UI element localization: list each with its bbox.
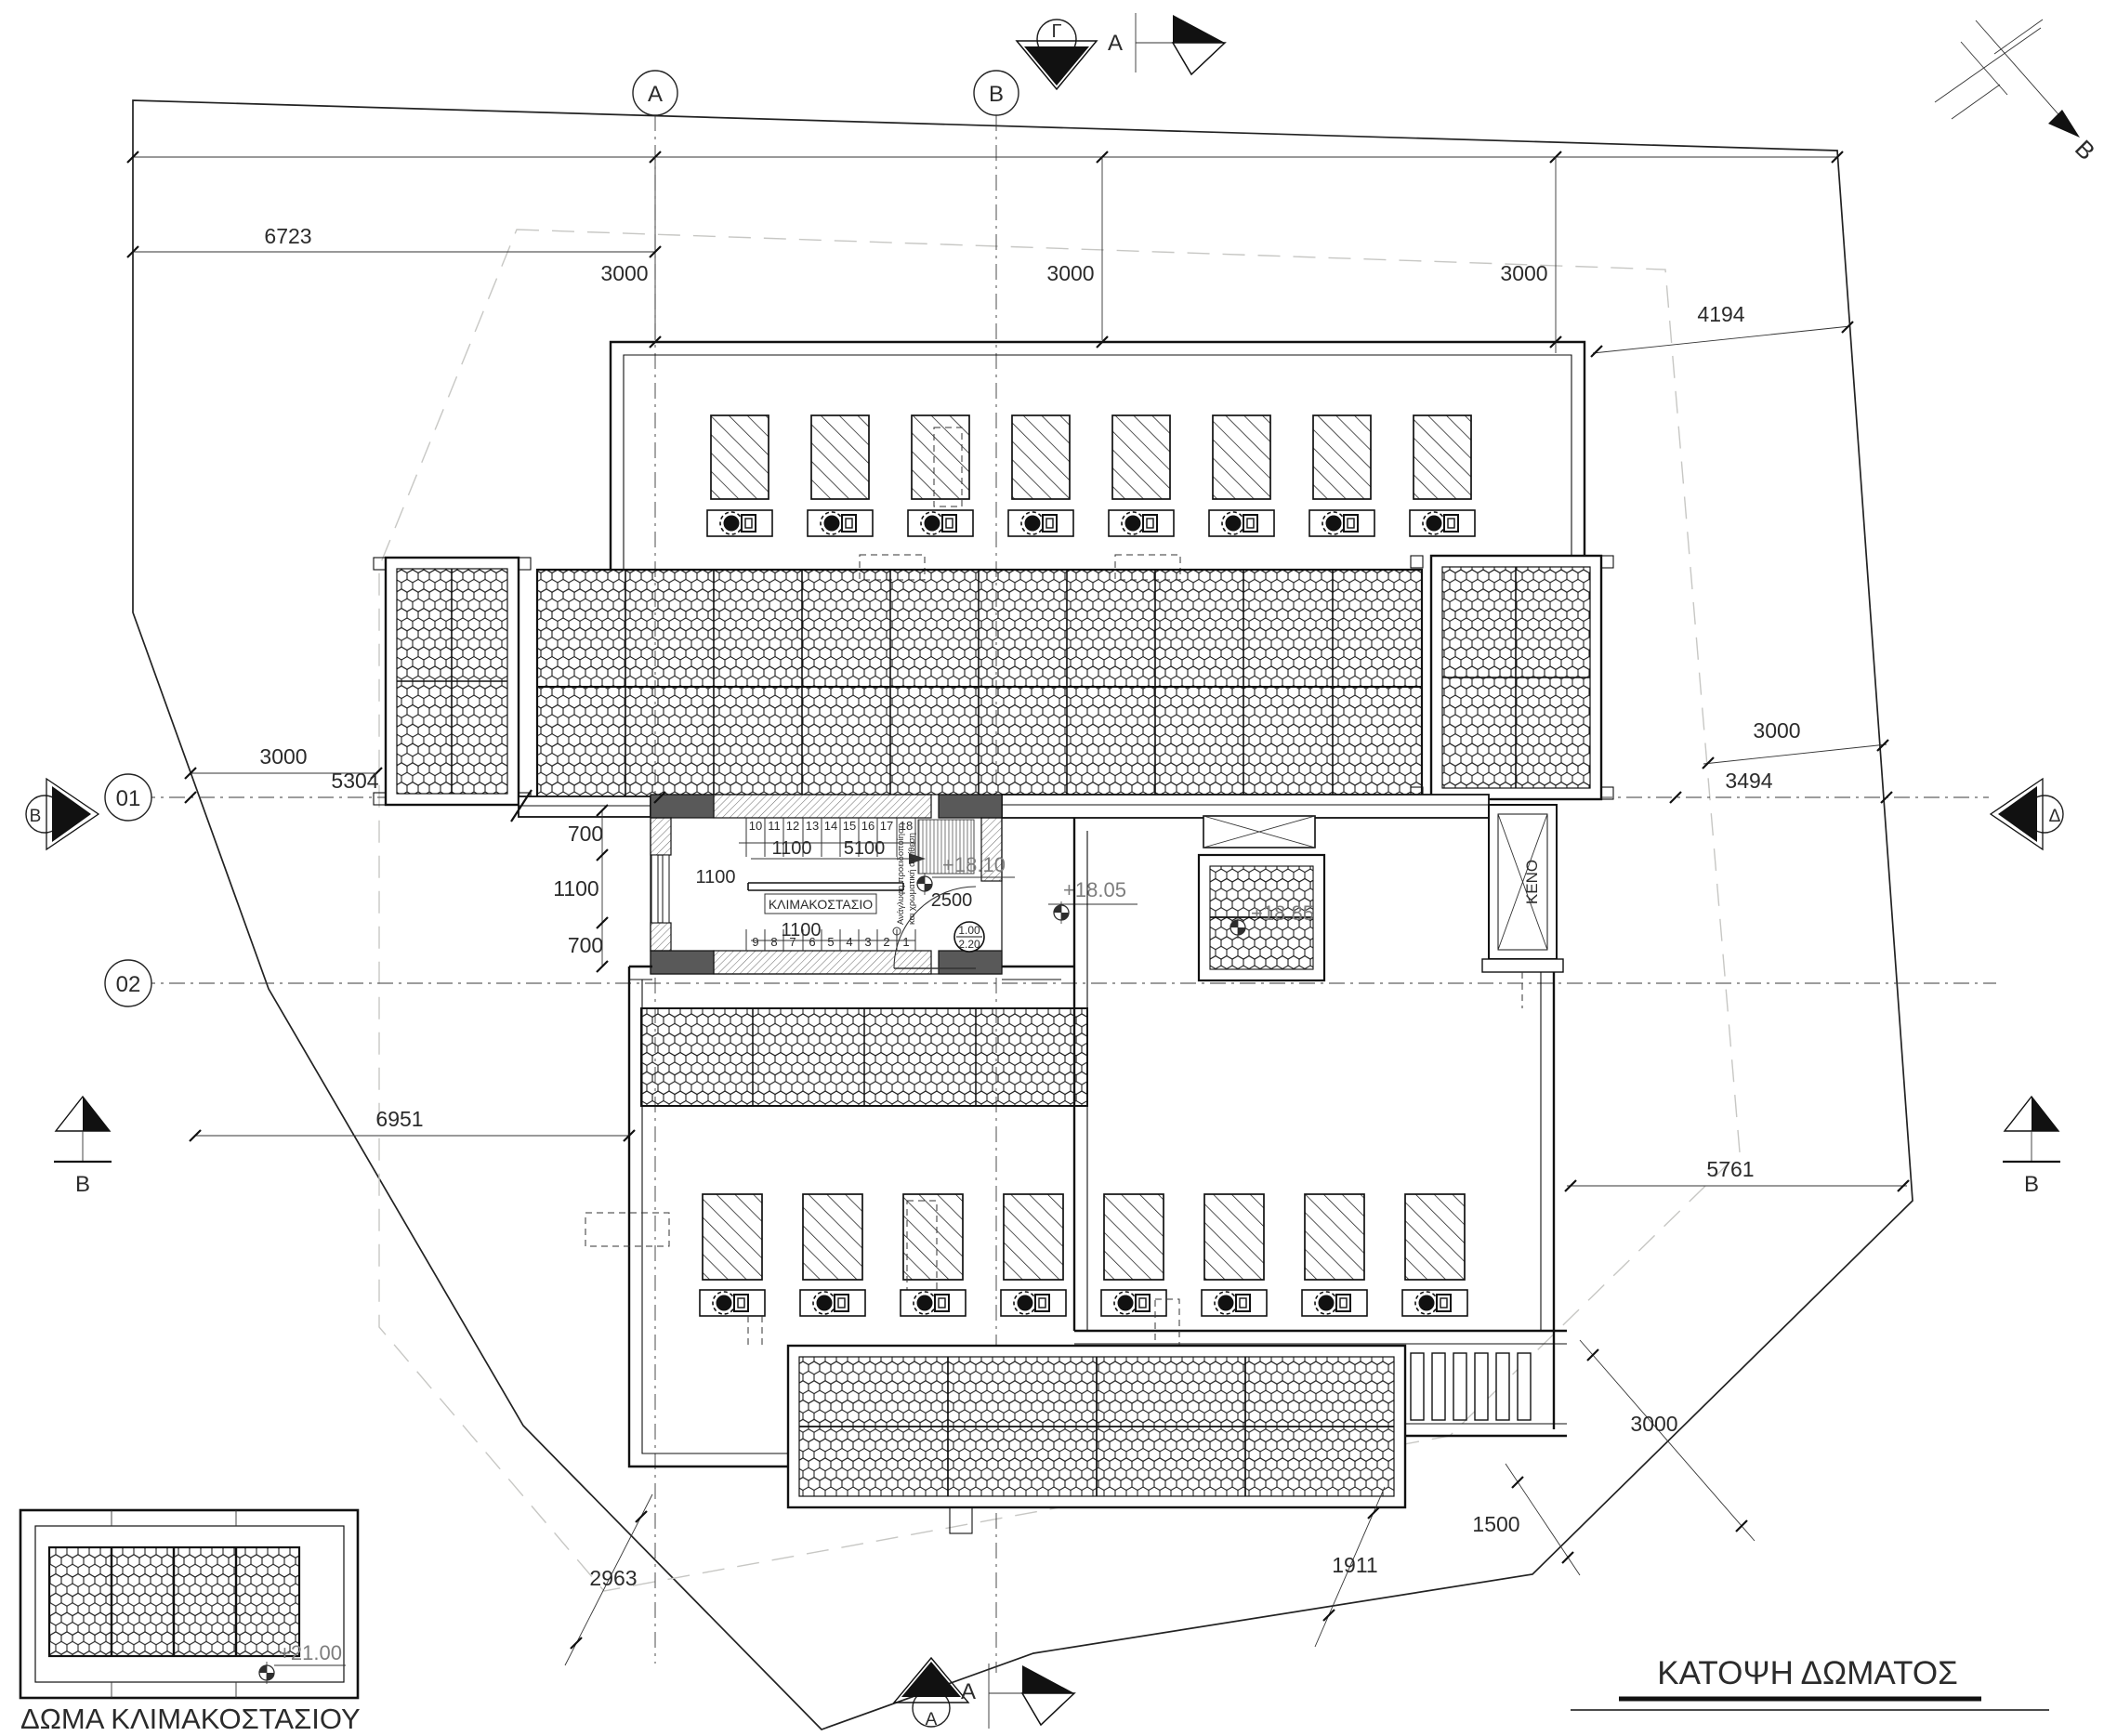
- tread-numbers-lower: 98 76 54 32 1: [752, 935, 909, 949]
- drawing-sheet: Β A B 01 02 Γ A B Δ B B: [0, 0, 2104, 1736]
- svg-text:A: A: [961, 1679, 976, 1704]
- north-arrow: Β: [1935, 20, 2100, 165]
- lower-pergola-panels: [703, 1194, 1465, 1301]
- middle-solar-band: [641, 1008, 1087, 1106]
- svg-text:1100: 1100: [771, 838, 811, 859]
- tactile-note: Ανάγλυφη προειδοποίηση και χρωματική αντ…: [896, 823, 917, 925]
- dim-3000-left: 3000: [600, 261, 648, 285]
- svg-text:Ανάγλυφη προειδοποίηση: Ανάγλυφη προειδοποίηση: [896, 823, 906, 925]
- svg-text:14: 14: [824, 819, 837, 833]
- svg-text:B: B: [2024, 1172, 2039, 1197]
- svg-text:9: 9: [752, 935, 758, 949]
- dim-3000-right-mid: 3000: [1753, 718, 1800, 743]
- upper-pergola-panels: [711, 415, 1471, 506]
- dim-3000-diag: 3000: [1630, 1412, 1677, 1436]
- svg-text:A: A: [648, 82, 663, 107]
- stair-room-label: ΚΛΙΜΑΚΟΣΤΑΣΙΟ: [765, 894, 876, 914]
- dim-700-bottom: 700: [568, 933, 603, 957]
- section-marker-delta-right: Δ: [1991, 779, 2063, 849]
- page-title: ΚΑΤΟΨΗ ΔΩΜΑΤΟΣ: [1657, 1655, 1957, 1691]
- svg-text:και χρωματική αντίθεση: και χρωματική αντίθεση: [907, 833, 917, 925]
- section-marker-b-bottom-left: B: [54, 1097, 112, 1197]
- svg-text:B: B: [75, 1172, 90, 1197]
- svg-text:A: A: [1108, 31, 1123, 56]
- door-height: 2.20: [958, 938, 980, 951]
- drawing-title-block: ΚΑΤΟΨΗ ΔΩΜΑΤΟΣ: [1571, 1655, 2049, 1710]
- svg-text:13: 13: [806, 819, 819, 833]
- section-cut-a-top: A: [1108, 13, 1225, 74]
- svg-text:A: A: [926, 1710, 938, 1729]
- svg-text:Γ: Γ: [1051, 21, 1061, 42]
- svg-text:17: 17: [880, 819, 893, 833]
- dim-5304: 5304: [331, 769, 378, 793]
- svg-text:01: 01: [116, 786, 141, 811]
- svg-text:5100: 5100: [844, 838, 886, 859]
- section-marker-gamma-top: Γ: [1017, 20, 1097, 89]
- svg-text:3: 3: [864, 935, 871, 949]
- skylight-xbox: [1203, 816, 1315, 848]
- svg-text:+18.05: +18.05: [1063, 878, 1126, 901]
- svg-text:B: B: [30, 807, 42, 826]
- door-width: 1.00: [958, 924, 980, 937]
- svg-text:1100: 1100: [781, 920, 821, 940]
- dim-1911: 1911: [1332, 1553, 1377, 1577]
- center-solar-box: +18.85: [1199, 855, 1324, 980]
- left-solar-box: [374, 558, 531, 805]
- svg-text:ΚΛΙΜΑΚΟΣΤΑΣΙΟ: ΚΛΙΜΑΚΟΣΤΑΣΙΟ: [769, 897, 873, 912]
- level-1885: +18.85: [1251, 901, 1314, 925]
- dim-1500: 1500: [1472, 1512, 1519, 1536]
- dim-6723: 6723: [264, 224, 311, 248]
- keno-shaft: ΚΕΝΟ: [1482, 805, 1563, 1008]
- level-1805: +18.05: [1048, 878, 1137, 924]
- svg-text:2500: 2500: [931, 890, 973, 911]
- level-2100: +21.00: [279, 1641, 342, 1664]
- svg-text:B: B: [989, 82, 1004, 107]
- dim-3494: 3494: [1725, 769, 1772, 793]
- grid-bubble-02: 02: [105, 960, 151, 1006]
- svg-text:12: 12: [786, 819, 799, 833]
- svg-text:Δ: Δ: [2049, 807, 2061, 826]
- svg-text:11: 11: [768, 819, 781, 833]
- svg-text:2: 2: [883, 935, 889, 949]
- right-solar-box: [1411, 556, 1613, 799]
- stair-column: [939, 795, 1002, 818]
- section-marker-b-left: B: [26, 779, 99, 849]
- grid-bubble-b: B: [974, 71, 1019, 115]
- svg-text:15: 15: [843, 819, 856, 833]
- dim-6951: 6951: [375, 1107, 423, 1131]
- svg-text:10: 10: [749, 819, 762, 833]
- section-marker-a-bottom-circle: A: [894, 1658, 968, 1729]
- stair-column: [651, 951, 714, 974]
- upper-wing: [374, 342, 1613, 805]
- svg-text:4: 4: [846, 935, 852, 949]
- svg-text:+18.10: +18.10: [942, 853, 1006, 876]
- upper-solar-field: [537, 570, 1422, 805]
- equipment-dashed-3: [585, 1213, 669, 1246]
- svg-text:02: 02: [116, 972, 141, 997]
- dim-3000-left-mid: 3000: [259, 744, 307, 769]
- dim-4194: 4194: [1697, 302, 1744, 326]
- grid-bubble-a: A: [633, 71, 677, 115]
- dim-2963: 2963: [589, 1566, 637, 1590]
- roof-grating: [1411, 1353, 1531, 1420]
- dim-700-top: 700: [568, 822, 603, 846]
- lower-ac-units: [700, 1290, 1467, 1316]
- inset-stair-roof: +21.00 ΔΩΜΑ ΚΛΙΜΑΚΟΣΤΑΣΙΟΥ: [20, 1510, 361, 1735]
- upper-ac-units: [707, 510, 1475, 536]
- dim-3000-right: 3000: [1500, 261, 1547, 285]
- svg-text:1100: 1100: [695, 867, 735, 888]
- canopy-strip-right: [1002, 795, 1489, 818]
- bottom-solar-strip: [788, 1346, 1405, 1507]
- dim-3000-mid: 3000: [1046, 261, 1094, 285]
- north-label: Β: [2070, 135, 2100, 165]
- svg-text:1: 1: [902, 935, 909, 949]
- svg-text:5: 5: [827, 935, 834, 949]
- tread-numbers-upper: 1011 1213 1415 1617 18: [749, 819, 913, 833]
- svg-text:8: 8: [770, 935, 777, 949]
- keno-label: ΚΕΝΟ: [1523, 860, 1541, 904]
- dim-1100-window: 1100: [553, 876, 598, 901]
- drain-tab: [950, 1507, 972, 1533]
- svg-text:16: 16: [861, 819, 874, 833]
- dim-5761: 5761: [1706, 1157, 1754, 1181]
- inset-title: ΔΩΜΑ ΚΛΙΜΑΚΟΣΤΑΣΙΟΥ: [20, 1703, 361, 1735]
- grid-bubble-01: 01: [105, 774, 151, 821]
- stair-column: [939, 951, 1002, 974]
- section-marker-b-bottom-right: B: [2003, 1097, 2060, 1197]
- stair-block: 1011 1213 1415 1617 18 98 76 54 32 1 ΚΛΙ…: [511, 790, 1489, 974]
